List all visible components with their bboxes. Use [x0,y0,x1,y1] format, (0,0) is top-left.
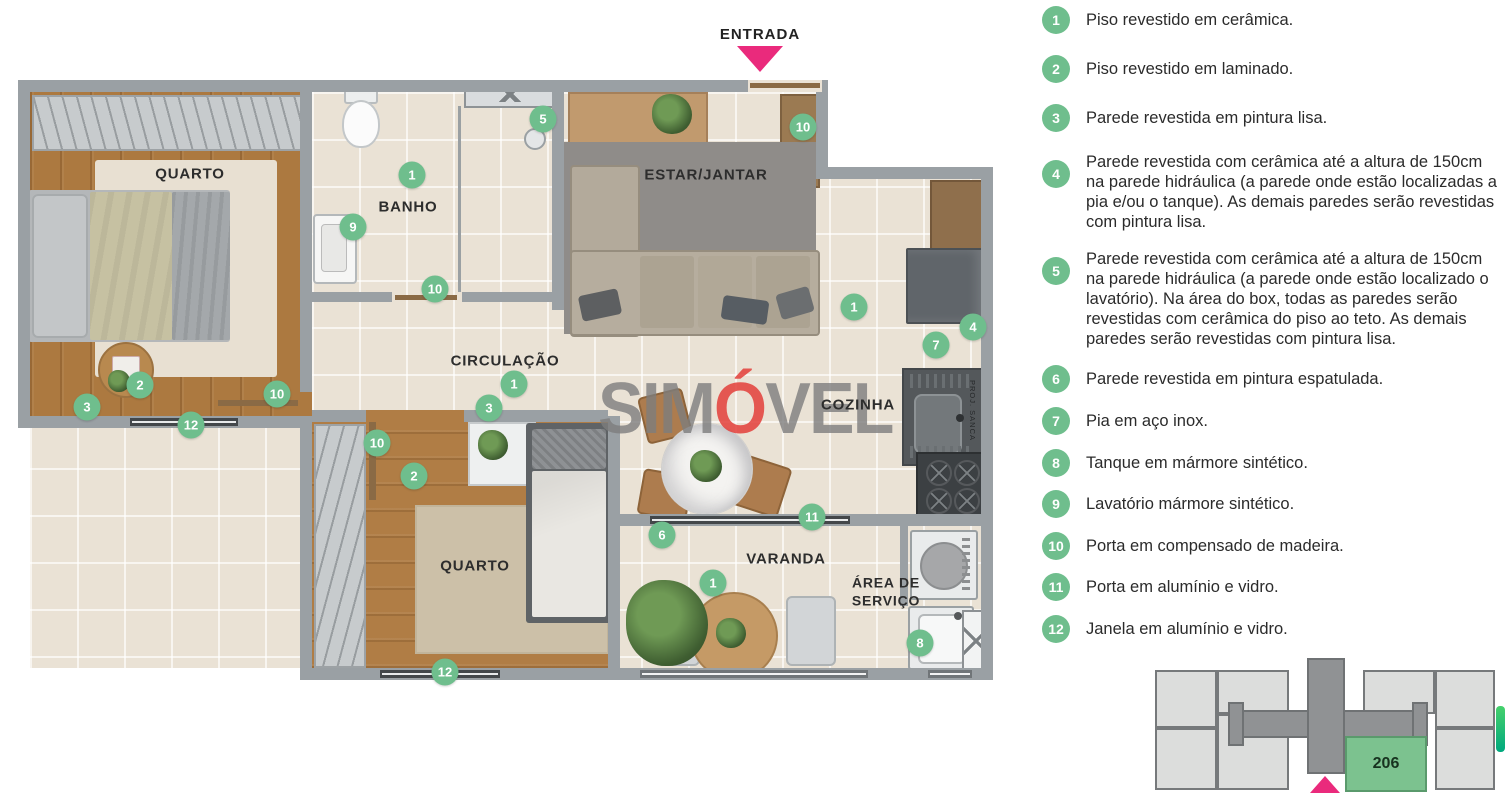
sideboard-plant [652,94,692,134]
desk-plant [478,430,508,460]
legend-item-9: 9Lavatório mármore sintético. [1042,490,1505,518]
legend-item-2: 2Piso revestido em laminado. [1042,55,1505,83]
keyplan-unit [1435,670,1495,728]
blanket-green [90,192,172,340]
room-label-estar-jantar: ESTAR/JANTAR [644,167,767,186]
room-label-quarto-2: QUARTO [440,558,510,577]
plan-badge-10: 10 [422,276,449,303]
bed-single [526,423,612,623]
room-label-circulacao: CIRCULAÇÃO [451,353,560,372]
keyplan-corridor-cap [1228,702,1244,746]
wall-upper-right [816,80,828,175]
floorplan: PROJ. SANCA [0,0,1010,800]
legend-item-1: 1Piso revestido em cerâmica. [1042,6,1505,34]
plan-badge-5: 5 [530,106,557,133]
legend-text: Tanque em mármore sintético. [1086,453,1308,473]
entrance-arrow-icon [737,46,783,72]
legend-number-badge: 11 [1042,573,1070,601]
legend-text: Janela em alumínio e vidro. [1086,619,1288,639]
bed-double [28,190,230,342]
legend-number-badge: 12 [1042,615,1070,643]
balcony-window [640,670,868,678]
plan-badge-1: 1 [501,371,528,398]
exterior-notch [828,0,1010,167]
legend-text: Pia em aço inox. [1086,411,1208,431]
legend-text: Piso revestido em cerâmica. [1086,10,1293,30]
plan-badge-9: 9 [340,214,367,241]
keyplan-unit [1155,728,1217,790]
legend-text: Piso revestido em laminado. [1086,59,1293,79]
wall-bath-bottom-a [312,292,392,302]
plan-badge-3: 3 [74,394,101,421]
shower-glass-partition [458,106,461,292]
plan-badge-3: 3 [476,395,503,422]
pillows [32,194,88,338]
legend-text: Porta em alumínio e vidro. [1086,577,1279,597]
wall-top [18,80,828,92]
plan-badge-12: 12 [432,659,459,686]
room-label-area-servico: ÁREA DE SERVIÇO [852,575,920,610]
legend-number-badge: 8 [1042,449,1070,477]
legend-text: Parede revestida com cerâmica até a altu… [1086,249,1505,349]
legend-text: Parede revestida em pintura lisa. [1086,108,1327,128]
keyplan-entrance-arrow-icon [1310,776,1340,793]
wall-step [816,167,993,179]
balcony-table-plant [716,618,746,648]
wall-left [18,80,30,428]
legend-item-12: 12Janela em alumínio e vidro. [1042,615,1505,643]
balcony-plant [626,580,708,666]
keyplan-core [1307,658,1345,774]
plan-badge-7: 7 [923,332,950,359]
legend-number-badge: 9 [1042,490,1070,518]
wall-bedroom2-left [300,416,312,680]
keyplan-unit-label: 206 [1373,755,1400,773]
wardrobe-bedroom1 [32,95,302,151]
dining-table-plant [690,450,722,482]
legend-item-10: 10Porta em compensado de madeira. [1042,532,1505,560]
legend-item-3: 3Parede revestida em pintura lisa. [1042,104,1505,132]
legend-number-badge: 2 [1042,55,1070,83]
sofa-pillow [578,288,623,322]
plan-badge-10: 10 [790,114,817,141]
legend-item-11: 11Porta em alumínio e vidro. [1042,573,1505,601]
legend-item-8: 8Tanque em mármore sintético. [1042,449,1505,477]
legend-text: Lavatório mármore sintético. [1086,494,1294,514]
plan-badge-11: 11 [799,504,826,531]
legend-text: Parede revestida com cerâmica até a altu… [1086,152,1505,232]
plan-badge-2: 2 [401,463,428,490]
entrance-label: ENTRADA [705,26,815,43]
legend-text: Parede revestida em pintura espatulada. [1086,369,1383,389]
keyplan-unit [1435,728,1495,790]
plan-badge-1: 1 [399,162,426,189]
bedroom1-door-opening [300,392,312,416]
plan-badge-12: 12 [178,412,205,439]
room-label-cozinha: COZINHA [821,397,895,416]
legend-item-5: 5Parede revestida com cerâmica até a alt… [1042,249,1505,349]
proj-sanca-label: PROJ. SANCA [968,380,977,470]
sofa [570,250,820,336]
legend-number-badge: 7 [1042,407,1070,435]
legend: 1Piso revestido em cerâmica.2Piso revest… [1042,0,1505,660]
toilet [338,86,380,146]
plan-badge-4: 4 [960,314,987,341]
keyplan-unit-206: 206 [1345,736,1427,792]
plan-badge-10: 10 [364,430,391,457]
building-keyplan: 206 [1150,652,1500,800]
legend-number-badge: 5 [1042,257,1070,285]
service-window [928,670,972,678]
tank-faucet [954,612,962,620]
entrance-door [750,83,820,88]
washing-machine [910,530,978,600]
wall-bath-bottom-b [462,292,560,302]
floorplan-page: PROJ. SANCA [0,0,1505,800]
wall-bedroom1-right [300,80,312,392]
legend-item-4: 4Parede revestida com cerâmica até a alt… [1042,152,1505,232]
plan-badge-1: 1 [700,570,727,597]
blanket-gray [172,192,230,340]
green-marker-bar [1496,706,1505,752]
wall-right [981,167,993,680]
bedroom2-door-opening [366,410,464,422]
legend-number-badge: 3 [1042,104,1070,132]
legend-number-badge: 6 [1042,365,1070,393]
plan-badge-6: 6 [649,522,676,549]
legend-number-badge: 4 [1042,160,1070,188]
room-label-quarto-1: QUARTO [155,166,225,185]
keyplan-unit [1155,670,1217,728]
room-label-banho: BANHO [379,199,438,218]
legend-number-badge: 1 [1042,6,1070,34]
plan-badge-8: 8 [907,630,934,657]
wall-bedroom2-right [608,416,620,680]
legend-item-7: 7Pia em aço inox. [1042,407,1505,435]
wardrobe-bedroom2 [314,424,366,668]
room-label-varanda: VARANDA [746,551,826,570]
balcony-chair [786,596,836,666]
kitchen-cabinet [930,180,986,250]
faucet [956,414,964,422]
plan-badge-1: 1 [841,294,868,321]
plan-badge-2: 2 [127,372,154,399]
plan-badge-10: 10 [264,381,291,408]
legend-item-6: 6Parede revestida em pintura espatulada. [1042,365,1505,393]
legend-number-badge: 10 [1042,532,1070,560]
legend-text: Porta em compensado de madeira. [1086,536,1344,556]
